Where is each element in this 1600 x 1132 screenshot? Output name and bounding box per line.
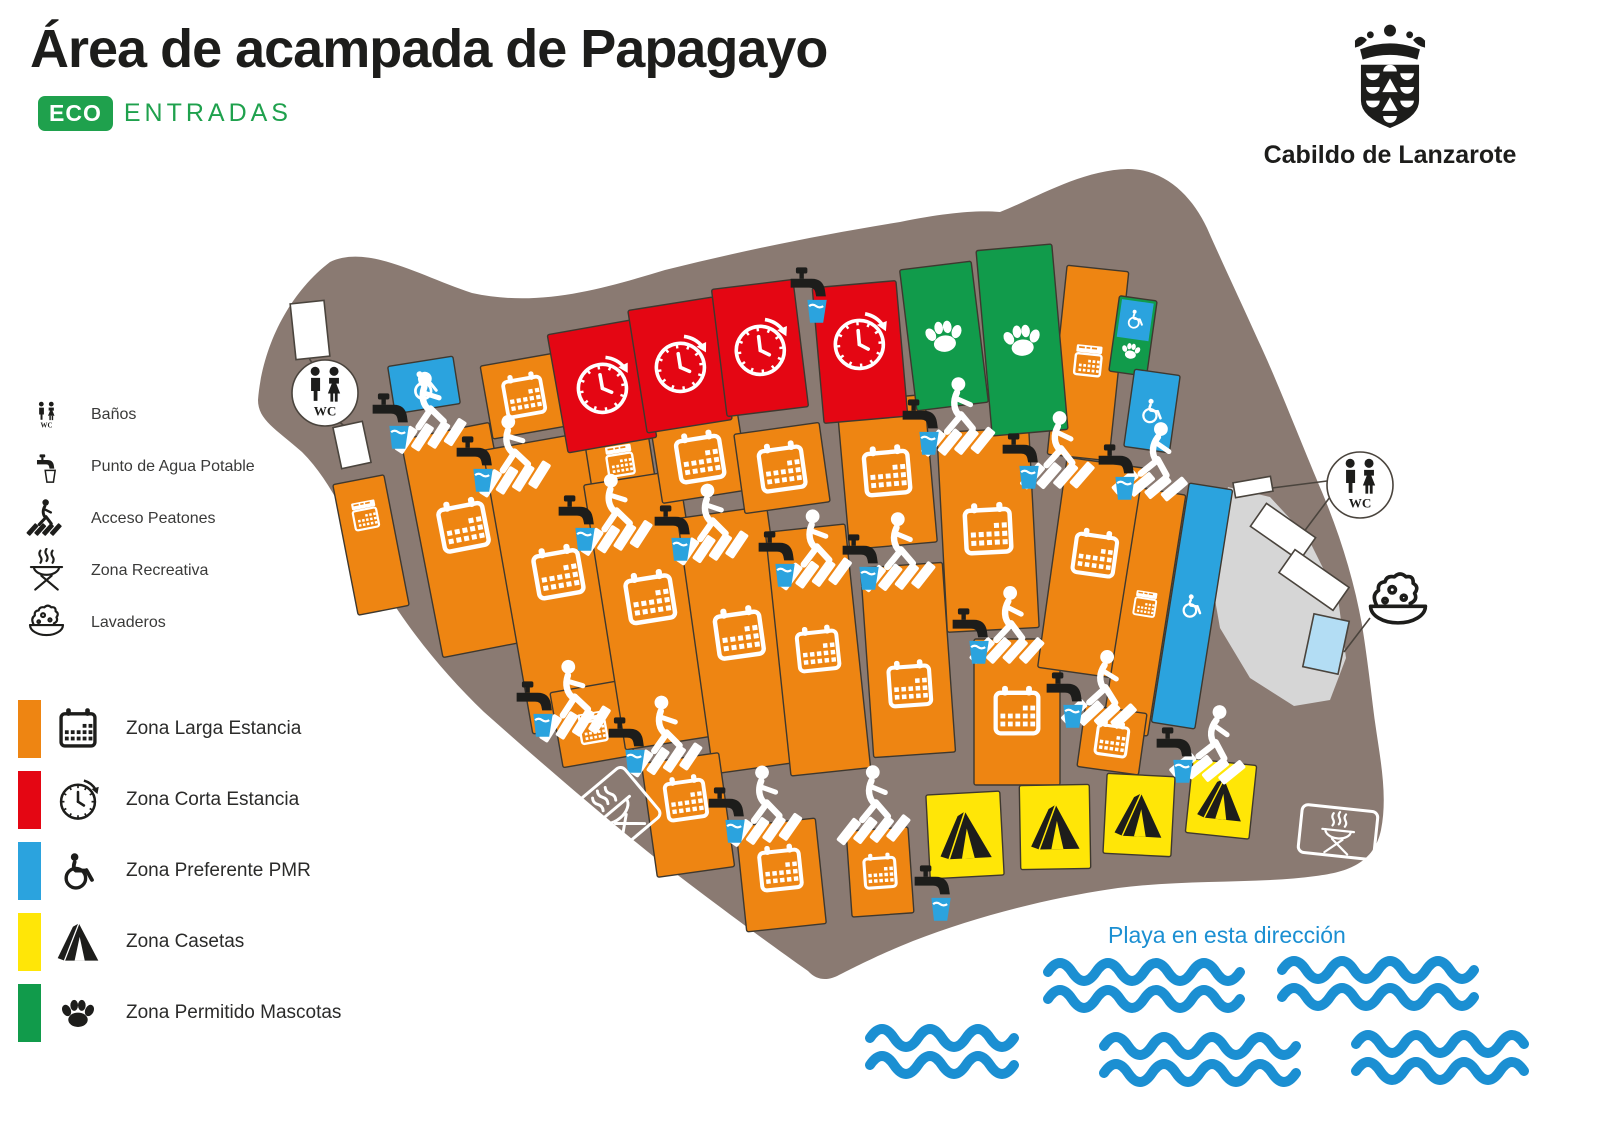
eco-entradas-label: ENTRADAS xyxy=(124,99,292,128)
header: Área de acampada de Papagayo ECO ENTRADA… xyxy=(30,18,827,131)
zone-legend-label: Zona Corta Estancia xyxy=(126,789,299,811)
facility-legend-label: Lavaderos xyxy=(91,614,166,632)
zone-casetas xyxy=(926,791,1004,879)
zone-pmr xyxy=(1124,369,1180,453)
sea-waves-icon xyxy=(1048,963,1240,1008)
zone-legend-label: Zona Casetas xyxy=(126,931,244,953)
wheelchair-icon xyxy=(56,849,100,893)
beach-direction-label: Playa en esta dirección xyxy=(1108,922,1346,949)
cabildo-logo: Cabildo de Lanzarote xyxy=(1240,22,1540,170)
clock-icon xyxy=(56,778,100,822)
zone-legend-item: Zona Permitido Mascotas xyxy=(18,984,341,1042)
sea-waves-icon xyxy=(1356,1035,1524,1080)
zone-legend-item: Zona Corta Estancia xyxy=(18,771,341,829)
facility-legend-item: Lavaderos xyxy=(24,600,255,645)
eco-ticket-icon: ECO xyxy=(38,96,113,131)
zone-larga xyxy=(734,422,830,513)
facility-legend-label: Zona Recreativa xyxy=(91,562,208,580)
laundry-icon xyxy=(24,600,69,645)
zone-mascotas xyxy=(976,244,1068,436)
wc-icon: WC xyxy=(24,392,69,437)
eco-entradas-logo: ECO ENTRADAS xyxy=(38,96,827,131)
zone-color-swatch xyxy=(18,771,41,829)
zone-larga xyxy=(860,562,955,757)
facility-legend-item: Acceso Peatones xyxy=(24,496,255,541)
svg-text:WC: WC xyxy=(41,422,53,429)
zone-legend-label: Zona Preferente PMR xyxy=(126,860,311,882)
cabildo-name: Cabildo de Lanzarote xyxy=(1240,141,1540,170)
zone-legend: Zona Larga EstanciaZona Corta EstanciaZo… xyxy=(18,700,341,1042)
facility-legend-label: Baños xyxy=(91,406,136,424)
zone-color-swatch xyxy=(18,842,41,900)
zone-color-swatch xyxy=(18,984,41,1042)
facility-legend-label: Acceso Peatones xyxy=(91,510,216,528)
laundry-area-icon xyxy=(1371,574,1426,623)
page-title: Área de acampada de Papagayo xyxy=(30,18,827,80)
svg-text:WC: WC xyxy=(1349,496,1372,511)
zone-casetas xyxy=(1103,773,1175,856)
zone-color-swatch xyxy=(18,700,41,758)
zone-casetas xyxy=(1019,784,1090,869)
wc-marker: WC xyxy=(1327,452,1393,518)
sea-waves-icon xyxy=(1282,961,1474,1006)
facility-legend: WCBañosPunto de Agua PotableAcceso Peato… xyxy=(24,392,255,645)
bbq-icon xyxy=(24,548,69,593)
sea-waves-icon xyxy=(1104,1037,1296,1082)
paw-icon xyxy=(56,991,100,1035)
service-building xyxy=(290,300,330,359)
svg-text:WC: WC xyxy=(314,404,337,419)
cabildo-crest-icon xyxy=(1343,22,1437,135)
zone-color-swatch xyxy=(18,913,41,971)
facility-legend-label: Punto de Agua Potable xyxy=(91,458,255,476)
sea-waves-icon xyxy=(870,1029,1014,1074)
zone-larga xyxy=(937,428,1039,633)
calendar-icon xyxy=(56,707,100,751)
zone-legend-label: Zona Larga Estancia xyxy=(126,718,301,740)
pedestrian-crossing-icon xyxy=(24,496,69,541)
water-tap-icon xyxy=(24,444,69,489)
zone-legend-item: Zona Preferente PMR xyxy=(18,842,341,900)
zone-legend-item: Zona Larga Estancia xyxy=(18,700,341,758)
facility-legend-item: Zona Recreativa xyxy=(24,548,255,593)
zone-legend-item: Zona Casetas xyxy=(18,913,341,971)
tent-icon xyxy=(56,920,100,964)
facility-legend-item: WCBaños xyxy=(24,392,255,437)
facility-legend-item: Punto de Agua Potable xyxy=(24,444,255,489)
zone-legend-label: Zona Permitido Mascotas xyxy=(126,1002,341,1024)
wc-marker: WC xyxy=(292,360,358,426)
zone-corta xyxy=(712,279,809,416)
zone-corta xyxy=(812,281,908,424)
